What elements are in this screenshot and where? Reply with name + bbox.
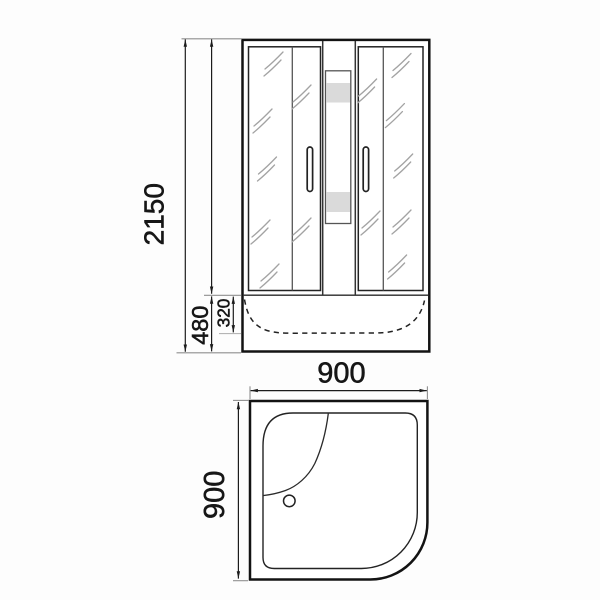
svg-text:2150: 2150: [139, 183, 170, 245]
svg-text:320: 320: [214, 299, 234, 328]
svg-text:900: 900: [317, 357, 365, 389]
svg-text:900: 900: [199, 471, 231, 519]
svg-text:480: 480: [187, 306, 213, 345]
